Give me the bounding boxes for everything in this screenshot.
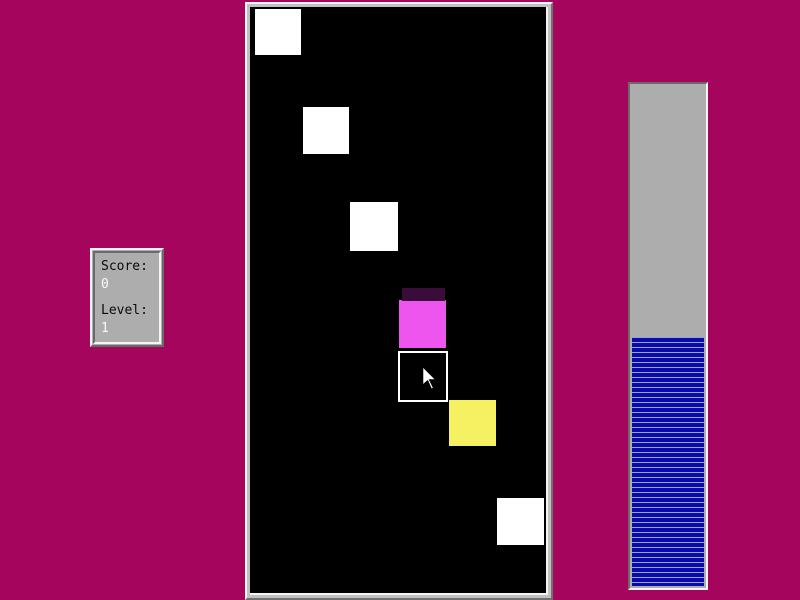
level-value: 1 bbox=[101, 320, 159, 338]
yellow-square[interactable] bbox=[449, 400, 496, 446]
white-square-3[interactable] bbox=[350, 202, 398, 251]
score-panel: Score: 0 Level: 1 bbox=[90, 248, 164, 347]
time-gauge bbox=[628, 82, 708, 590]
playfield-canvas[interactable] bbox=[250, 7, 548, 595]
score-value: 0 bbox=[101, 276, 159, 294]
white-square-4[interactable] bbox=[497, 498, 544, 545]
score-panel-spacer bbox=[101, 294, 159, 302]
mouse-cursor-icon bbox=[421, 364, 438, 392]
white-square-1[interactable] bbox=[255, 9, 301, 55]
playfield-frame bbox=[245, 2, 553, 600]
gauge-fill bbox=[632, 337, 704, 586]
score-label: Score: bbox=[101, 258, 159, 276]
game-window: Score: 0 Level: 1 bbox=[0, 0, 800, 600]
level-label: Level: bbox=[101, 302, 159, 320]
magenta-square-fading-edge[interactable] bbox=[402, 288, 445, 301]
magenta-square[interactable] bbox=[399, 300, 446, 348]
white-square-2[interactable] bbox=[303, 107, 349, 154]
score-panel-inner: Score: 0 Level: 1 bbox=[93, 251, 161, 344]
